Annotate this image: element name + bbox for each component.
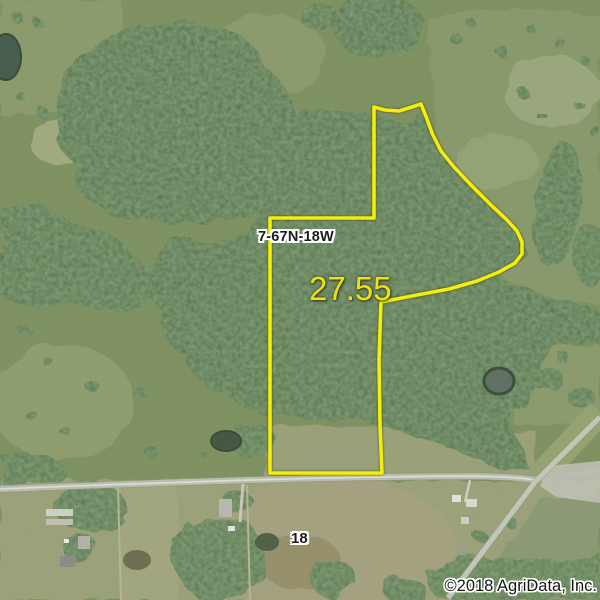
parcel-acreage-label: 27.55 xyxy=(309,272,392,305)
highway-18-marker: 18 xyxy=(291,531,308,546)
copyright-notice: ©2018 AgriData, Inc. xyxy=(445,578,598,595)
satellite-imagery xyxy=(0,0,600,600)
aerial-map-viewport[interactable]: 7-67N-18W 27.55 18 ©2018 AgriData, Inc. xyxy=(0,0,600,600)
township-section-label: 7-67N-18W xyxy=(258,230,334,245)
image-grain xyxy=(0,0,600,600)
